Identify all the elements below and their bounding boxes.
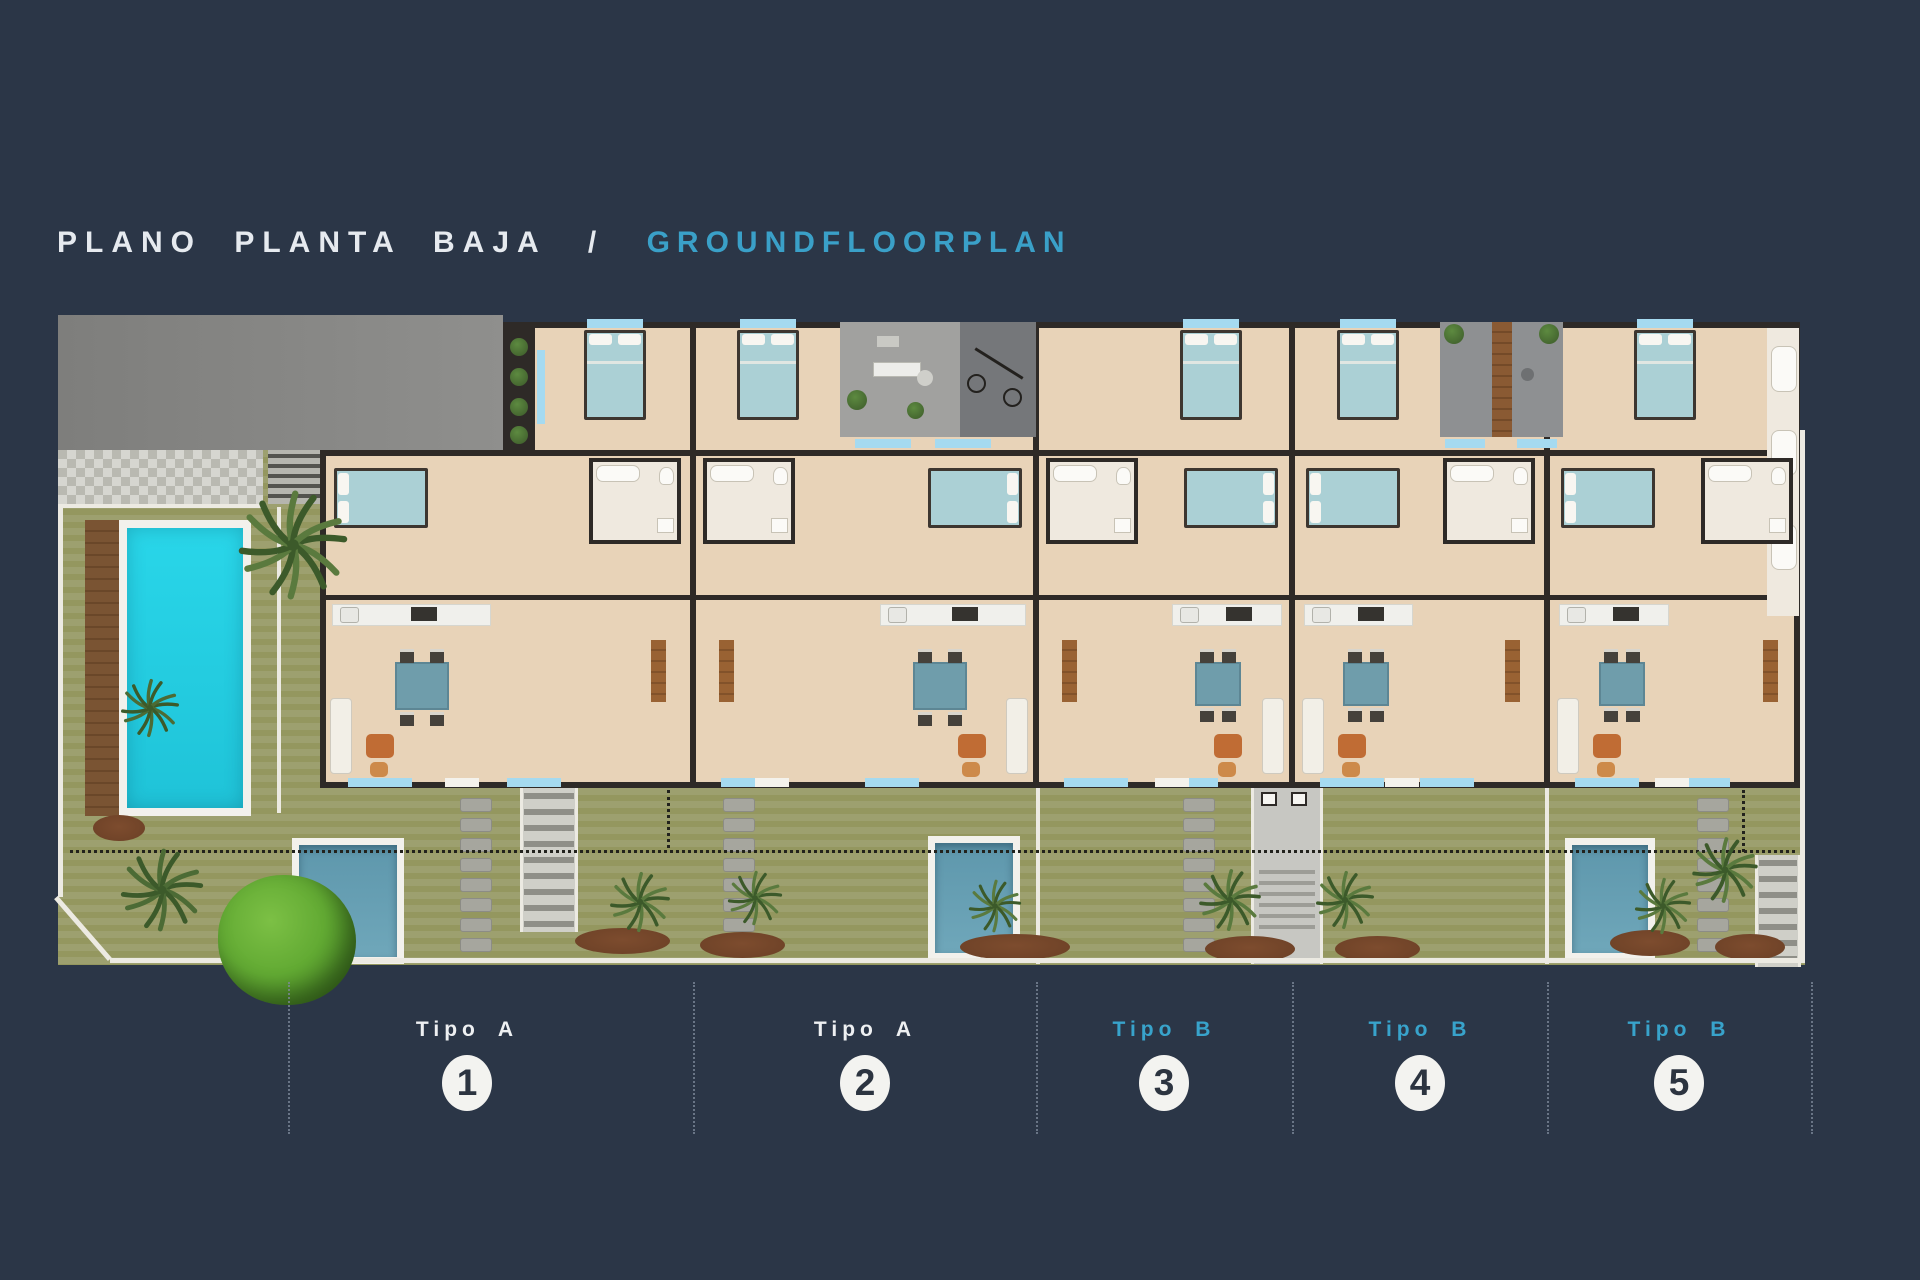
bed-pillow	[1310, 501, 1321, 523]
terrace-door	[1385, 778, 1419, 787]
bed-pillow	[1342, 334, 1365, 345]
walkway-step	[1259, 892, 1315, 896]
window	[1420, 778, 1474, 787]
bath-sink	[771, 518, 788, 533]
unit-divider-dotted-line	[1547, 982, 1549, 1134]
dining-chair	[1348, 708, 1362, 722]
palm-tree	[118, 846, 206, 934]
cooktop	[1358, 607, 1384, 621]
dining-chair	[1370, 708, 1384, 722]
mulch-bed	[1715, 934, 1785, 960]
palm-tree	[726, 869, 784, 927]
bed-pillow	[1565, 473, 1576, 495]
shrub	[1539, 324, 1559, 344]
dining-chair	[1200, 708, 1214, 722]
bicycle-wheel	[967, 374, 986, 393]
unit-type-label: Tipo B	[1054, 1018, 1274, 1042]
bed-pillow	[1310, 473, 1321, 495]
pouf	[962, 762, 980, 777]
dining-chair	[430, 712, 444, 726]
kitchen-sink	[888, 607, 907, 623]
unit-number-badge: 1	[442, 1055, 492, 1111]
stepping-stones	[460, 898, 492, 912]
armchair	[1338, 734, 1366, 758]
dining-chair	[400, 649, 414, 663]
planter-bush	[510, 398, 528, 416]
unit-type-label: Tipo B	[1310, 1018, 1530, 1042]
armchair	[1214, 734, 1242, 758]
palm-tree	[1633, 876, 1693, 936]
pouf	[1597, 762, 1615, 777]
unit-label-1: Tipo A 1	[357, 1018, 577, 1111]
bed-pillow	[1668, 334, 1691, 345]
stepping-stones	[1697, 798, 1729, 812]
property-line-dotted	[667, 790, 670, 848]
window	[1517, 439, 1557, 448]
cooktop	[1613, 607, 1639, 621]
stepping-stones	[1183, 818, 1215, 832]
bed-pillow	[1263, 473, 1274, 495]
dining-chair	[1222, 708, 1236, 722]
dining-chair	[430, 649, 444, 663]
wardrobe	[1763, 640, 1778, 702]
unit-type-label: Tipo B	[1569, 1018, 1789, 1042]
toilet	[1513, 467, 1528, 485]
window	[1340, 319, 1396, 328]
wardrobe	[1062, 640, 1077, 702]
stepping-stones	[723, 798, 755, 812]
planter-bush	[510, 338, 528, 356]
boundary-line	[110, 958, 1805, 963]
walkway-step	[1259, 881, 1315, 885]
unit-divider-dotted-line	[693, 982, 695, 1134]
floor-plan	[55, 310, 1810, 970]
toilet	[773, 467, 788, 485]
utility-box	[1261, 792, 1277, 806]
stepping-stones	[460, 818, 492, 832]
stair-tread	[524, 921, 574, 927]
stepping-stones	[460, 798, 492, 812]
paver-edge	[58, 504, 263, 508]
boundary-line	[58, 507, 63, 897]
armchair	[958, 734, 986, 758]
terrace-door	[445, 778, 479, 787]
boundary-line	[1800, 430, 1805, 963]
mulch-bed	[960, 934, 1070, 960]
street-driveway	[58, 315, 503, 450]
cooktop	[1226, 607, 1252, 621]
title-english: GROUNDFLOORPLAN	[647, 226, 1072, 259]
page: PLANO PLANTA BAJA / GROUNDFLOORPLAN Tipo…	[0, 0, 1920, 1280]
window	[1445, 439, 1485, 448]
dining-chair	[1200, 649, 1214, 663]
terrace-door	[1155, 778, 1189, 787]
bathtub	[596, 465, 640, 482]
palm-tree	[235, 487, 351, 603]
shrub	[907, 402, 924, 419]
palm-tree	[1690, 835, 1760, 905]
window	[1575, 778, 1639, 787]
stepping-stones	[460, 938, 492, 952]
page-title: PLANO PLANTA BAJA / GROUNDFLOORPLAN	[57, 226, 1072, 260]
stepping-stone-round	[917, 370, 933, 386]
bicycle-wheel	[1003, 388, 1022, 407]
main-pool	[127, 528, 243, 808]
stair-tread	[524, 873, 574, 879]
bed-blanket-fold	[587, 361, 643, 364]
title-separator: /	[588, 226, 604, 259]
dining-table	[1343, 662, 1389, 706]
window	[740, 319, 796, 328]
planter-bush	[510, 426, 528, 444]
bed-pillow	[1185, 334, 1208, 345]
window	[348, 778, 412, 787]
sofa	[1557, 698, 1579, 774]
walkway-step	[1259, 925, 1315, 929]
palm-tree	[1197, 867, 1263, 933]
dining-chair	[918, 649, 932, 663]
dining-chair	[948, 649, 962, 663]
stepping-stones	[460, 858, 492, 872]
window	[537, 350, 545, 424]
stair-tread	[1759, 892, 1797, 898]
palm-tree	[967, 878, 1023, 934]
bath-sink	[657, 518, 674, 533]
bathtub	[1053, 465, 1097, 482]
patio-table	[877, 336, 899, 347]
unit-number-badge: 5	[1654, 1055, 1704, 1111]
dining-table	[1195, 662, 1241, 706]
bed-blanket-fold	[740, 361, 796, 364]
dining-chair	[948, 712, 962, 726]
stepping-stones	[1697, 918, 1729, 932]
palm-tree	[1314, 869, 1376, 931]
stair-tread	[268, 474, 320, 478]
stair-tread	[524, 809, 574, 815]
party-wall	[1289, 322, 1295, 788]
wood-walkway	[1492, 322, 1512, 437]
bath-sink	[1511, 518, 1528, 533]
window	[935, 439, 991, 448]
palm-tree	[608, 870, 672, 934]
window	[1320, 778, 1384, 787]
toilet	[659, 467, 674, 485]
unit-divider-dotted-line	[1292, 982, 1294, 1134]
armchair	[366, 734, 394, 758]
unit-divider-dotted-line	[1036, 982, 1038, 1134]
kitchen-sink	[1567, 607, 1586, 623]
bed-blanket-fold	[1183, 361, 1239, 364]
terrace-door	[755, 778, 789, 787]
bath-sink	[1114, 518, 1131, 533]
wardrobe	[651, 640, 666, 702]
stair-tread	[524, 857, 574, 863]
sofa	[330, 698, 352, 774]
unit-number-badge: 3	[1139, 1055, 1189, 1111]
toilet	[1771, 467, 1786, 485]
window	[587, 319, 643, 328]
dining-table	[913, 662, 967, 710]
pouf	[370, 762, 388, 777]
window	[1183, 319, 1239, 328]
planter-bush	[510, 368, 528, 386]
unit-number-badge: 4	[1395, 1055, 1445, 1111]
party-wall	[690, 322, 696, 788]
courtyard-patio	[840, 322, 960, 437]
pool-wood-deck	[85, 520, 119, 816]
dining-chair	[1604, 649, 1618, 663]
stepping-stone-round	[1521, 368, 1534, 381]
bed-pillow	[1639, 334, 1662, 345]
terrace-door	[1655, 778, 1689, 787]
dining-chair	[1348, 649, 1362, 663]
stair-tread	[1759, 924, 1797, 930]
stair-tread	[1759, 860, 1797, 866]
paver-path	[58, 450, 263, 504]
kitchen-sink	[1180, 607, 1199, 623]
bed-pillow	[742, 334, 765, 345]
toilet	[1116, 467, 1131, 485]
stepping-stones	[460, 918, 492, 932]
bed-pillow	[771, 334, 794, 345]
bench	[873, 362, 921, 377]
interior-wall	[320, 450, 1800, 456]
window	[1064, 778, 1128, 787]
kitchen-sink	[340, 607, 359, 623]
stair-tread	[524, 841, 574, 847]
bed-blanket-fold	[1637, 361, 1693, 364]
stair-tread	[524, 905, 574, 911]
window	[1637, 319, 1693, 328]
dining-chair	[1626, 708, 1640, 722]
stepping-stones	[460, 878, 492, 892]
bed-pillow	[1565, 501, 1576, 523]
armchair	[1593, 734, 1621, 758]
interior-wall	[320, 595, 1800, 600]
wardrobe	[1505, 640, 1520, 702]
bathtub	[710, 465, 754, 482]
unit-divider-dotted-line	[1811, 982, 1813, 1134]
utility-box	[1291, 792, 1307, 806]
stair-tread	[524, 889, 574, 895]
dining-chair	[1222, 649, 1236, 663]
unit-label-4: Tipo B 4	[1310, 1018, 1530, 1111]
bed-pillow	[1263, 501, 1274, 523]
bed-pillow	[1007, 501, 1018, 523]
unit-divider-dotted-line	[288, 982, 290, 1134]
dining-table	[1599, 662, 1645, 706]
cooktop	[411, 607, 437, 621]
property-line-dotted	[70, 850, 1795, 853]
bathtub	[1450, 465, 1494, 482]
window	[507, 778, 561, 787]
bathtub	[1708, 465, 1752, 482]
stepping-stones	[723, 818, 755, 832]
cooktop	[952, 607, 978, 621]
mulch-bed	[700, 932, 785, 958]
window	[855, 439, 911, 448]
dining-chair	[1626, 649, 1640, 663]
sofa	[1302, 698, 1324, 774]
unit-type-label: Tipo A	[755, 1018, 975, 1042]
bed-pillow	[1214, 334, 1237, 345]
pouf	[1342, 762, 1360, 777]
title-spanish: PLANO PLANTA BAJA	[57, 226, 546, 259]
unit-label-2: Tipo A 2	[755, 1018, 975, 1111]
mulch-bed	[93, 815, 145, 841]
unit-type-label: Tipo A	[357, 1018, 577, 1042]
stair-tread	[268, 464, 320, 468]
stair-tread	[268, 454, 320, 458]
unit-number-badge: 2	[840, 1055, 890, 1111]
stair-tread	[524, 825, 574, 831]
bath-sink	[1769, 518, 1786, 533]
kitchen-sink	[1312, 607, 1331, 623]
walkway-step	[1259, 903, 1315, 907]
dining-chair	[1370, 649, 1384, 663]
bed-pillow	[589, 334, 612, 345]
sofa	[1262, 698, 1284, 774]
walkway-step	[1259, 914, 1315, 918]
terrace-divider	[1545, 788, 1549, 964]
window	[865, 778, 919, 787]
stepping-stones	[1183, 798, 1215, 812]
walkway-step	[1259, 870, 1315, 874]
sofa	[1006, 698, 1028, 774]
bed-pillow	[618, 334, 641, 345]
shrub	[1444, 324, 1464, 344]
unit-label-3: Tipo B 3	[1054, 1018, 1274, 1111]
stepping-stones	[1697, 818, 1729, 832]
bathtub	[1771, 346, 1797, 392]
unit-label-5: Tipo B 5	[1569, 1018, 1789, 1111]
pouf	[1218, 762, 1236, 777]
dining-chair	[1604, 708, 1618, 722]
stair-tread	[524, 793, 574, 799]
palm-tree	[119, 677, 181, 739]
tree	[218, 875, 356, 1005]
stair-tread	[1759, 876, 1797, 882]
dining-table	[395, 662, 449, 710]
wardrobe	[719, 640, 734, 702]
shrub	[847, 390, 867, 410]
dining-chair	[918, 712, 932, 726]
bed-pillow	[1007, 473, 1018, 495]
bed-pillow	[1371, 334, 1394, 345]
stair-tread	[1759, 908, 1797, 914]
bed-blanket-fold	[1340, 361, 1396, 364]
dining-chair	[400, 712, 414, 726]
